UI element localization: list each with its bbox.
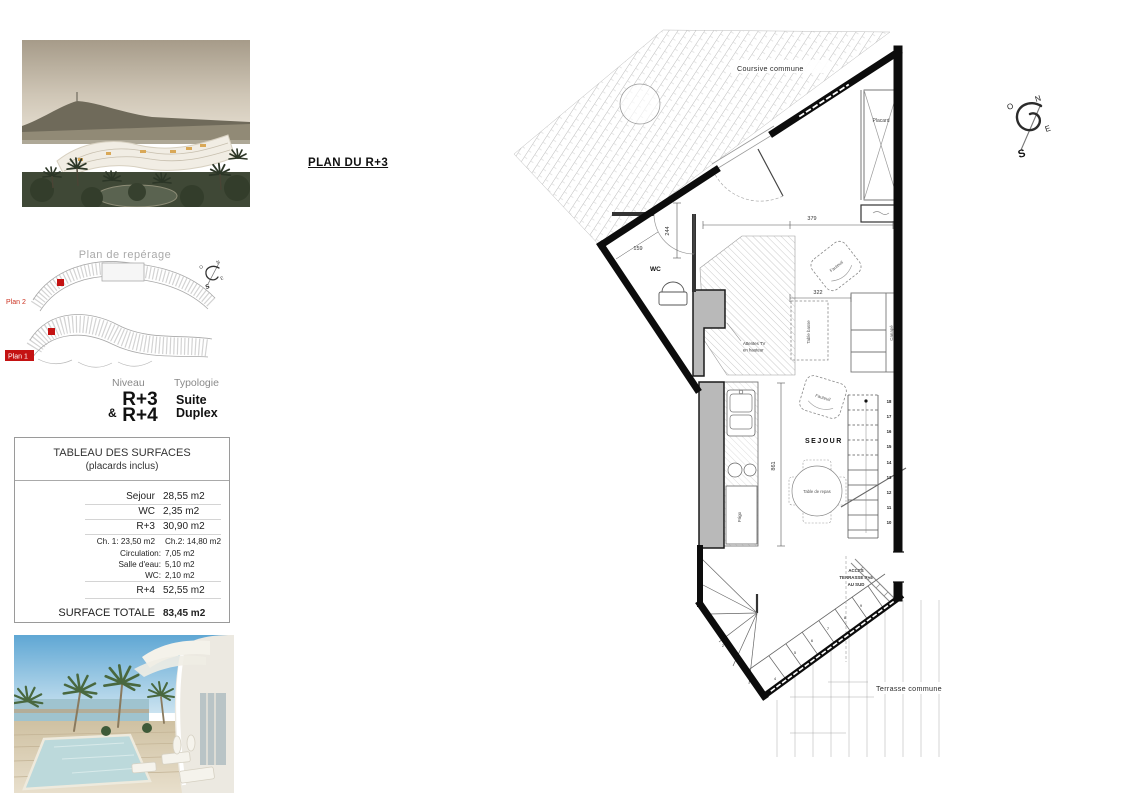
svg-text:11: 11	[887, 505, 892, 510]
niveau-values: R+3 R+4	[117, 392, 163, 424]
dim-322: 322	[813, 290, 822, 296]
surfaces-title: TABLEAU DES SURFACES	[15, 447, 229, 459]
tv-note-line2: en hauteur	[743, 348, 764, 353]
floorplan: Coursive commune Terrasse commune Frigo	[500, 24, 1080, 776]
surface-row-r3: R+3 30,90 m2	[15, 520, 221, 534]
terrasse-commune-label: Terrasse commune	[876, 684, 942, 693]
dim-159: 159	[633, 246, 642, 252]
svg-text:18: 18	[887, 399, 892, 404]
svg-text:17: 17	[887, 414, 892, 419]
svg-text:7: 7	[827, 626, 830, 631]
surface-row-wc-r4: WC: 2,10 m2	[15, 570, 221, 581]
svg-text:6: 6	[811, 638, 814, 643]
surface-row-salle-eau: Salle d'eau: 5,10 m2	[15, 559, 221, 570]
masonry-walls	[693, 290, 725, 548]
svg-text:14: 14	[887, 460, 892, 465]
building-render-photo	[22, 40, 250, 207]
typologie-values: Suite Duplex	[176, 394, 218, 420]
svg-text:12: 12	[887, 490, 892, 495]
pool	[24, 735, 150, 789]
sejour-label: SEJOUR	[805, 438, 843, 445]
mini-compass: N O E S	[199, 259, 225, 291]
surfaces-table: TABLEAU DES SURFACES (placards inclus) S…	[14, 437, 230, 623]
reperage-building-plan1	[30, 315, 212, 368]
canape-sofa: Canapé	[851, 293, 898, 372]
toilet-icon	[659, 282, 687, 305]
surface-row-r4: R+4 52,55 m2	[15, 584, 221, 598]
kitchen: Frigo	[724, 382, 758, 546]
table-de-repas: Table de repas	[789, 460, 846, 523]
compass-s: S	[1017, 147, 1027, 160]
reperage-map: Plan 2 Plan 1 N O E S	[0, 252, 250, 377]
svg-text:13: 13	[887, 475, 892, 480]
compass-e: E	[1044, 124, 1052, 134]
mini-compass-s: S	[205, 284, 210, 291]
svg-text:15: 15	[887, 444, 892, 449]
surfaces-subtitle: (placards inclus)	[15, 461, 229, 472]
surface-row-sejour: Sejour 28,55 m2	[15, 490, 221, 504]
plan2-marker-dot	[57, 279, 64, 286]
staircase-upper-numbers: 18 17 16 15 14 13 12 11 10	[887, 399, 892, 525]
svg-text:10: 10	[887, 520, 892, 525]
typologie-label: Typologie	[174, 377, 219, 389]
photo-shore	[14, 709, 149, 713]
table-basse-label: Table basse	[806, 320, 811, 344]
row-separator	[85, 534, 221, 535]
coursive-column	[620, 84, 660, 124]
surface-row-chambres: Ch. 1: 23,50 m2 Ch.2: 14,80 m2	[15, 536, 221, 548]
compass-n: N	[1034, 93, 1042, 103]
svg-text:8: 8	[844, 615, 847, 620]
surface-total-row: SURFACE TOTALE 83,45 m2	[15, 606, 221, 621]
plan2-label: Plan 2	[6, 299, 26, 306]
canape-label: Canapé	[889, 325, 894, 341]
niveau-ampersand: &	[108, 406, 117, 420]
terrace-door-opening	[893, 552, 904, 582]
table-basse: Table basse	[791, 301, 828, 360]
wc-label: WC	[650, 266, 661, 273]
dim-379: 379	[807, 216, 816, 222]
row-separator	[85, 581, 221, 582]
niveau-label: Niveau	[112, 377, 145, 389]
table-repas-label: Table de repas	[803, 489, 830, 494]
burner	[728, 463, 742, 477]
burner	[744, 464, 756, 476]
compass-o: O	[1006, 101, 1015, 111]
fauteuil-1: Fauteuil	[808, 238, 864, 294]
reperage-building-plan2	[33, 261, 215, 311]
mini-compass-n: N	[216, 259, 221, 265]
placard-label: Placard	[873, 118, 890, 124]
fauteuil-2: Fauteuil	[798, 374, 849, 421]
row-separator	[85, 598, 221, 599]
tv-note-line1: Attentes TV	[743, 341, 766, 346]
mini-compass-e: E	[220, 275, 225, 281]
surface-row-circulation: Circulation: 7,05 m2	[15, 548, 221, 559]
svg-text:5: 5	[794, 650, 797, 655]
svg-text:4: 4	[774, 676, 777, 681]
mini-compass-o: O	[199, 264, 204, 270]
coursive-hatch-area	[514, 30, 890, 247]
plan-sheet: Plan de repérage Plan 2 Plan 1 N O E S N…	[0, 0, 1134, 800]
plan-title: PLAN DU R+3	[308, 157, 388, 169]
niveau-r4: R+4	[117, 408, 163, 424]
dim-861: 861	[771, 461, 777, 470]
typologie-duplex: Duplex	[176, 407, 218, 420]
svg-text:TERRASSE R+3: TERRASSE R+3	[839, 575, 873, 580]
frigo-label: Frigo	[737, 511, 742, 522]
svg-text:9: 9	[860, 603, 863, 608]
svg-text:AU SUD: AU SUD	[848, 582, 865, 587]
pool-terrace-photo	[14, 635, 234, 793]
plan1-marker-dot	[48, 328, 55, 335]
dim-244: 244	[665, 226, 671, 235]
surface-row-wc: WC 2,35 m2	[15, 505, 221, 519]
compass-rose: N O E S	[1006, 93, 1052, 160]
svg-text:16: 16	[887, 429, 892, 434]
coursive-commune-label: Coursive commune	[737, 64, 804, 73]
plan1-label: Plan 1	[8, 354, 28, 361]
acces-terrasse-note: ACCES TERRASSE R+3 AU SUD	[839, 568, 873, 587]
terrace-decking	[777, 600, 939, 757]
surfaces-rows: Sejour 28,55 m2 WC 2,35 m2 R+3 30,90 m2 …	[15, 481, 229, 621]
